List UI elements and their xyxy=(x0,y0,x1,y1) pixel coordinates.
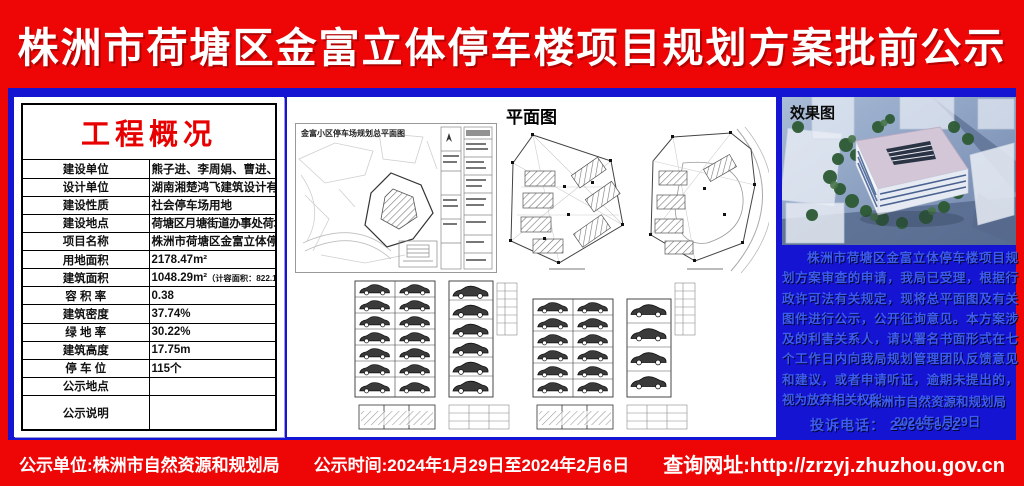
table-row: 建筑密度37.74% xyxy=(22,305,276,323)
project-overview-table: 工程概况 建设单位熊子进、李周娟、曹进、周正桃、吴昊、王家旺 设计单位湖南湘楚鸿… xyxy=(21,103,277,431)
site-plan-drawing: 金富小区停车场规划总平面图 xyxy=(295,123,497,273)
floor-area-note: （计容面积：822.16m²，不计容面积：226.13m²） xyxy=(207,274,276,283)
notice-paragraph: 株洲市荷塘区金富立体停车楼项目规划方案审查的申请，我局已受理，根据行政许可法有关… xyxy=(782,248,1018,410)
table-row: 用地面积2178.47m² xyxy=(22,251,276,269)
footer-time: 公示时间:2024年1月29日至2024年2月6日 xyxy=(314,451,630,476)
overview-title: 工程概况 xyxy=(22,104,276,160)
table-row: 设计单位湖南湘楚鸿飞建筑设计有限公司、甲级 xyxy=(22,178,276,196)
rendering-panel: 效果图 xyxy=(782,97,1016,245)
plan-panel: 平面图 金富小区停车场规划总平面图 xyxy=(287,97,776,437)
content-area: 工程概况 建设单位熊子进、李周娟、曹进、周正桃、吴昊、王家旺 设计单位湖南湘楚鸿… xyxy=(8,88,1016,440)
table-row: 建筑高度17.75m xyxy=(22,341,276,359)
rendering-label: 效果图 xyxy=(790,102,835,123)
table-row: 停 车 位115个 xyxy=(22,359,276,377)
signature-org: 株洲市自然资源和规划局 xyxy=(868,392,1006,412)
table-row: 项目名称株洲市荷塘区金富立体停车楼 xyxy=(22,232,276,250)
top-banner: 株洲市荷塘区金富立体停车楼项目规划方案批前公示 xyxy=(0,0,1024,88)
table-row: 建设性质社会停车场用地 xyxy=(22,196,276,214)
floor-plan-2-drawing xyxy=(639,127,769,273)
table-row: 容 积 率0.38 xyxy=(22,287,276,305)
footer-url: 查询网址:http://zrzyj.zhuzhou.gov.cn xyxy=(663,449,1005,478)
table-row: 建设地点荷塘区月塘街道办事处荷塘铺村规划JC73路与JC76路交汇处以南 xyxy=(22,214,276,232)
table-row: 建筑面积1048.29m²（计容面积：822.16m²，不计容面积：226.13… xyxy=(22,269,276,287)
table-row: 绿 地 率30.22% xyxy=(22,323,276,341)
elevation-drawing-left xyxy=(349,277,519,434)
signature-block: 株洲市自然资源和规划局 2024年1月29日 xyxy=(868,392,1006,432)
project-overview-panel: 工程概况 建设单位熊子进、李周娟、曹进、周正桃、吴昊、王家旺 设计单位湖南湘楚鸿… xyxy=(14,97,284,437)
table-row: 建设单位熊子进、李周娟、曹进、周正桃、吴昊、王家旺 xyxy=(22,160,276,178)
signature-date: 2024年1月29日 xyxy=(868,412,1006,432)
poster-title: 株洲市荷塘区金富立体停车楼项目规划方案批前公示 xyxy=(18,14,1007,74)
svg-text:金富小区停车场规划总平面图: 金富小区停车场规划总平面图 xyxy=(300,128,405,138)
public-notice-poster: 株洲市荷塘区金富立体停车楼项目规划方案批前公示 工程概况 建设单位熊子进、李周娟… xyxy=(0,0,1024,486)
table-row: 公示说明 xyxy=(22,396,276,430)
table-row: 公示地点 xyxy=(22,377,276,395)
bottom-banner: 公示单位:株洲市自然资源和规划局 公示时间:2024年1月29日至2024年2月… xyxy=(0,440,1024,486)
floor-plan-1-drawing xyxy=(503,127,631,273)
footer-unit: 公示单位:株洲市自然资源和规划局 xyxy=(19,451,280,476)
elevation-drawing-right xyxy=(527,277,697,434)
